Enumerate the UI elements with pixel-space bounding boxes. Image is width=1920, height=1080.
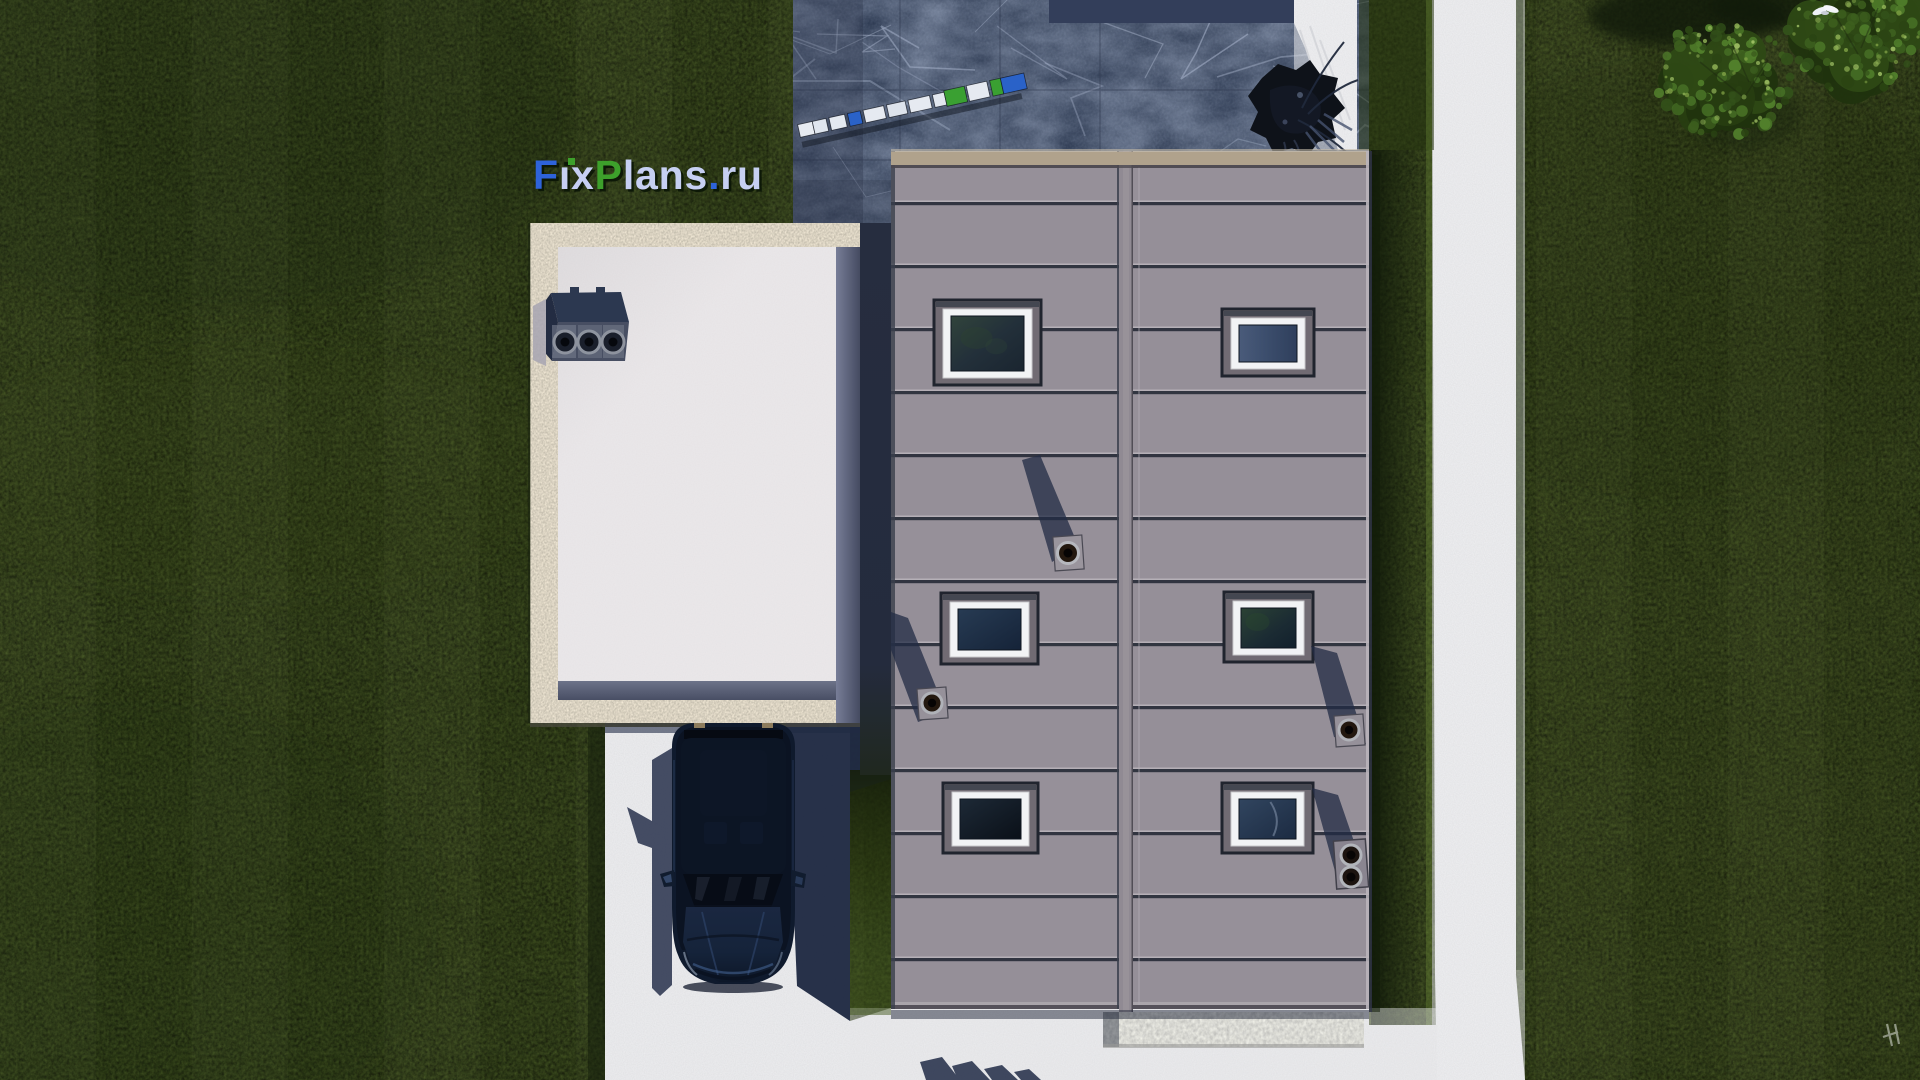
svg-text:FıxPlans.ru: FıxPlans.ru — [533, 152, 763, 198]
